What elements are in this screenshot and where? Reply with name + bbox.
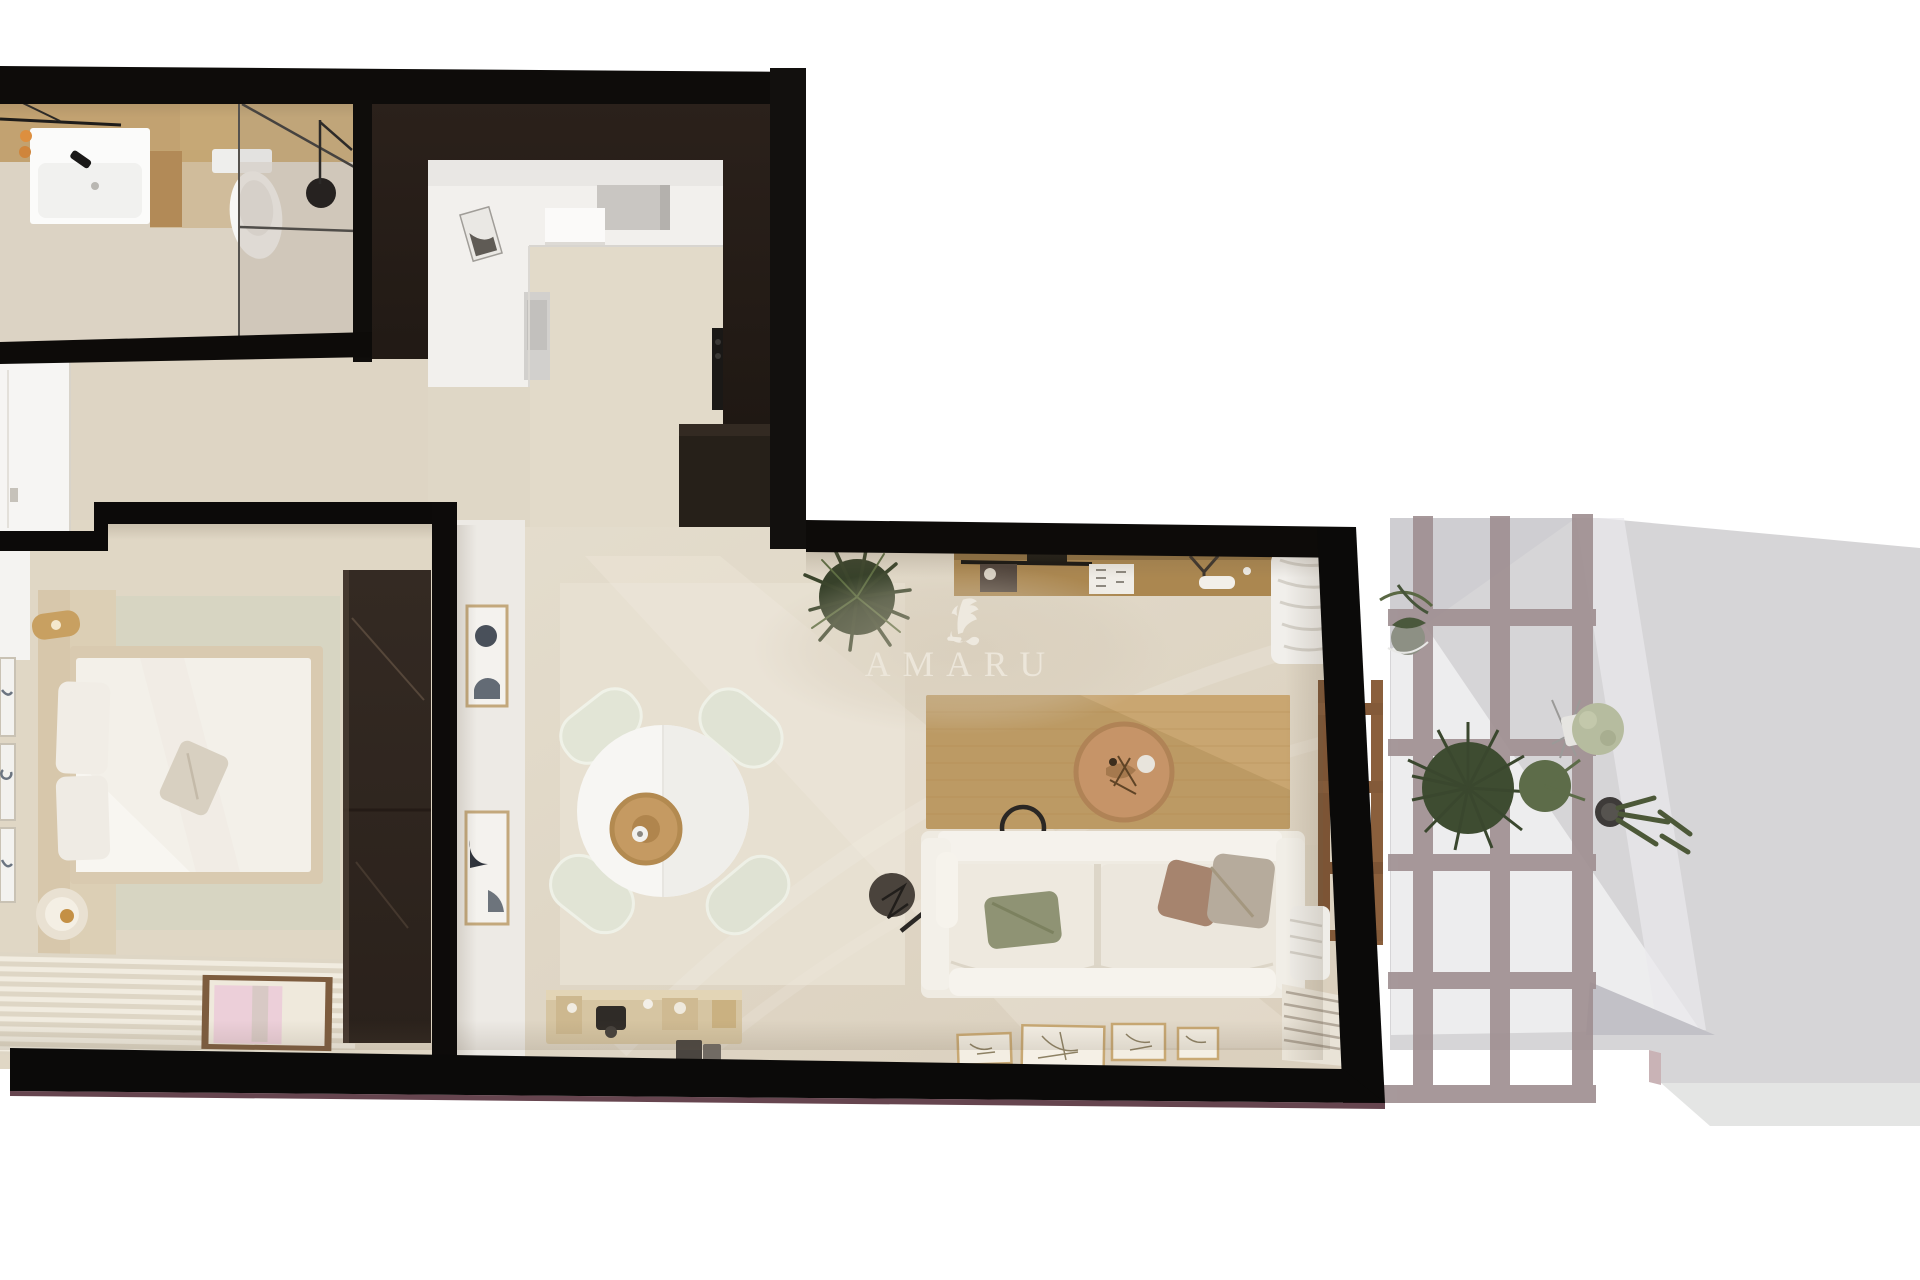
svg-text:AMARU: AMARU: [865, 644, 1057, 684]
